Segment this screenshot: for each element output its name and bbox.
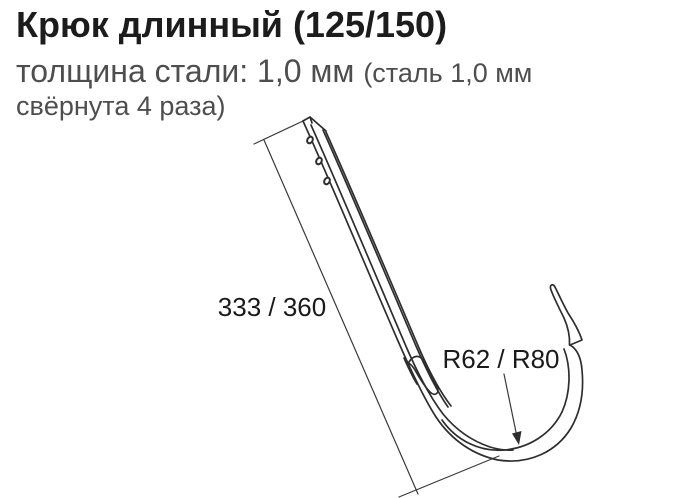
hook-technical-drawing: 333 / 360 R62 / R80 (0, 0, 681, 498)
product-drawing-page: Крюк длинный (125/150) толщина стали: 1,… (0, 0, 681, 498)
cradle-bent-tip (550, 285, 582, 345)
radius-dimension-label: R62 / R80 (442, 344, 559, 374)
length-dimension-label: 333 / 360 (218, 292, 326, 322)
strap-hole (323, 177, 331, 186)
extension-line-bottom (399, 456, 499, 497)
strap-second-edge (311, 125, 513, 450)
radius-leader-line (504, 374, 517, 437)
radius-leader-arrowhead (512, 431, 522, 445)
strap-left-edge-and-outer-curve (303, 121, 583, 461)
strap-hem-edge-outer (326, 132, 451, 406)
extension-line-top (254, 121, 303, 144)
